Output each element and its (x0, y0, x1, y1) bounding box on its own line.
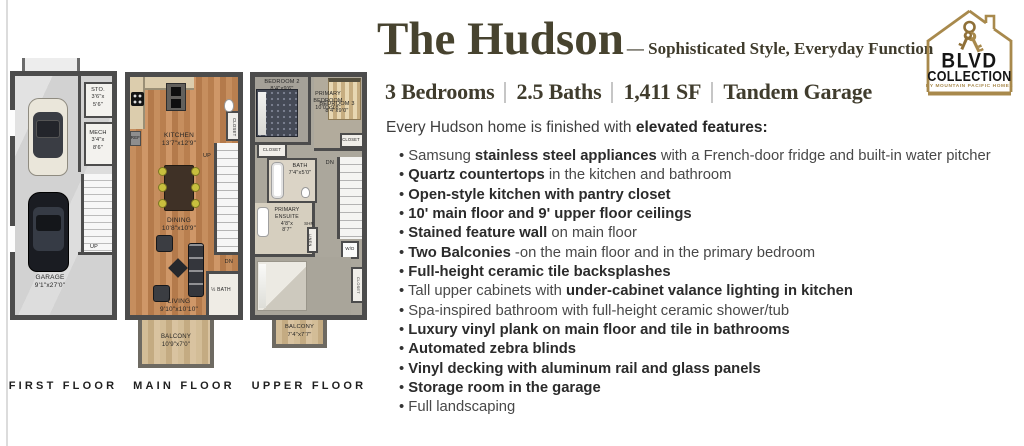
washer-dryer-label: W/D (341, 246, 359, 252)
linen-label: LINEN (308, 229, 313, 251)
mechanical-label: MECH 3'4"x 8'6" (85, 130, 111, 152)
stove-icon (131, 92, 144, 106)
interior-wall (78, 252, 112, 255)
feature-item: Tall upper cabinets with under-cabinet v… (399, 282, 1011, 301)
page-title: The Hudson (377, 14, 624, 66)
upper-floor-outline: BEDROOM 2 8'4"x9'6" BEDROOM 3 8'4"x9'0" … (250, 72, 367, 320)
feature-item: Vinyl decking with aluminum rail and gla… (399, 360, 1011, 379)
dining-chair (191, 183, 200, 192)
upper-floor-caption: UPPER FLOOR (248, 380, 370, 392)
dn-label: DN (225, 259, 233, 266)
primary-bedroom-room (255, 257, 351, 315)
living-label: LIVING 9'10"x10'10" (146, 298, 212, 315)
car-sunroof (36, 215, 61, 231)
toilet (224, 99, 234, 112)
car-bottom (28, 192, 69, 272)
logo-name-line2: COLLECTION (919, 68, 1020, 85)
feature-item: Spa-inspired bathroom with full-height c… (399, 302, 1011, 321)
spec-separator (611, 82, 613, 103)
spec-item: 3 Bedrooms (385, 79, 494, 105)
feature-item: Full-height ceramic tile backsplashes (399, 263, 1011, 282)
dining-chair (158, 199, 167, 208)
main-floor-plan: CLOSET REF KITCHEN 13'7"x12'9" UP DN DIN… (125, 72, 243, 368)
coffee-table (168, 258, 188, 278)
dining-label: DINING 10'8"x10'9" (146, 217, 212, 234)
closet-label: CLOSET (257, 147, 287, 153)
feature-sheet: STO. 3'6"x 5'6" MECH 3'4"x 8'6" UP GARAG… (0, 0, 1024, 446)
spec-item: 2.5 Baths (516, 79, 601, 105)
first-floor-outline: STO. 3'6"x 5'6" MECH 3'4"x 8'6" UP GARAG… (10, 71, 117, 320)
window-notch (10, 226, 15, 252)
dining-table (164, 165, 194, 211)
up-label: UP (203, 153, 211, 160)
stairs (81, 174, 112, 252)
dining-chair (158, 183, 167, 192)
closet-label: CLOSET (340, 137, 362, 142)
bath-label: BATH 7'4"x5'0" (283, 163, 317, 177)
bedroom2-label: BEDROOM 2 8'4"x9'6" (255, 79, 309, 94)
spec-item: 1,411 SF (623, 79, 701, 105)
intro-line: Every Hudson home is finished with eleva… (386, 119, 768, 137)
kitchen-label: KITCHEN 13'7"x12'9" (144, 132, 214, 149)
main-floor-caption: MAIN FLOOR (125, 380, 243, 392)
balcony-label: BALCONY 7'4"x7'7" (272, 324, 327, 339)
feature-item: Open-style kitchen with pantry closet (399, 186, 1011, 205)
up-label: UP (90, 244, 98, 251)
car-top (28, 98, 68, 176)
spec-separator (711, 82, 713, 103)
spec-separator (504, 82, 506, 103)
upper-floor-plan: BEDROOM 2 8'4"x9'6" BEDROOM 3 8'4"x9'0" … (250, 72, 367, 348)
tagline: — Sophisticated Style, Everyday Function (627, 39, 934, 59)
intro-regular: Every Hudson home is finished with (386, 119, 636, 136)
dn-label: DN (326, 160, 334, 167)
kitchen-island (166, 83, 186, 111)
main-floor-outline: CLOSET REF KITCHEN 13'7"x12'9" UP DN DIN… (125, 72, 243, 320)
ref-label: REF (130, 135, 141, 141)
stairs (337, 157, 362, 239)
island-cooktop (171, 99, 181, 108)
balcony-label: BALCONY 10'9"x7'0" (138, 334, 214, 350)
stairs (214, 143, 238, 255)
feature-item: Automated zebra blinds (399, 340, 1011, 359)
first-floor-caption: FIRST FLOOR (6, 380, 120, 392)
feature-item: Luxury vinyl plank on main floor and til… (399, 321, 1011, 340)
feature-item: 10' main floor and 9' upper floor ceilin… (399, 205, 1011, 224)
feature-item: Stained feature wall on main floor (399, 224, 1011, 243)
pillows (259, 264, 266, 308)
window-notch (10, 110, 15, 136)
island-sink (171, 87, 181, 96)
feature-item: Full landscaping (399, 398, 1011, 417)
shower-label: SHR (303, 221, 315, 227)
toilet (301, 187, 310, 198)
bed (257, 261, 307, 311)
spec-item: Tandem Garage (723, 79, 872, 105)
logo-byline: BY MOUNTAIN PACIFIC HOMES (919, 84, 1020, 89)
dining-chair (191, 199, 200, 208)
feature-item: Quartz countertops in the kitchen and ba… (399, 166, 1011, 185)
intro-bold: elevated features: (636, 119, 768, 136)
feature-item: Two Balconies -on the main floor and in … (399, 244, 1011, 263)
feature-item: Samsung stainless steel appliances with … (399, 147, 1011, 166)
primary-bedroom-label: PRIMARY BEDROOM 10'0"x9'8" (307, 91, 349, 112)
pillows (258, 92, 266, 135)
feature-item: Storage room in the garage (399, 379, 1011, 398)
closet-label: CLOSET (356, 269, 361, 301)
bed (256, 89, 298, 137)
first-floor-plan: STO. 3'6"x 5'6" MECH 3'4"x 8'6" UP GARAG… (10, 58, 117, 320)
storage-label: STO. 3'6"x 5'6" (85, 87, 111, 109)
features-list: Samsung stainless steel appliances with … (399, 147, 1011, 418)
header: The Hudson — Sophisticated Style, Everyd… (377, 14, 933, 66)
blvd-logo: BLVD COLLECTION BY MOUNTAIN PACIFIC HOME… (919, 6, 1020, 106)
half-bath-label: ½ BATH (206, 287, 236, 294)
closet-label: CLOSET (231, 113, 237, 141)
armchair (156, 235, 173, 252)
dining-chair (158, 167, 167, 176)
garage-label: GARAGE 9'1"x27'0" (19, 274, 81, 291)
interior-wall (78, 76, 81, 172)
dining-chair (191, 167, 200, 176)
ensuite-label: PRIMARY ENSUITE 4'8"x 8'7" (267, 207, 307, 234)
car-sunroof (36, 120, 60, 138)
specs-row: 3 Bedrooms2.5 Baths1,411 SFTandem Garage (385, 79, 872, 105)
sofa (188, 243, 204, 297)
